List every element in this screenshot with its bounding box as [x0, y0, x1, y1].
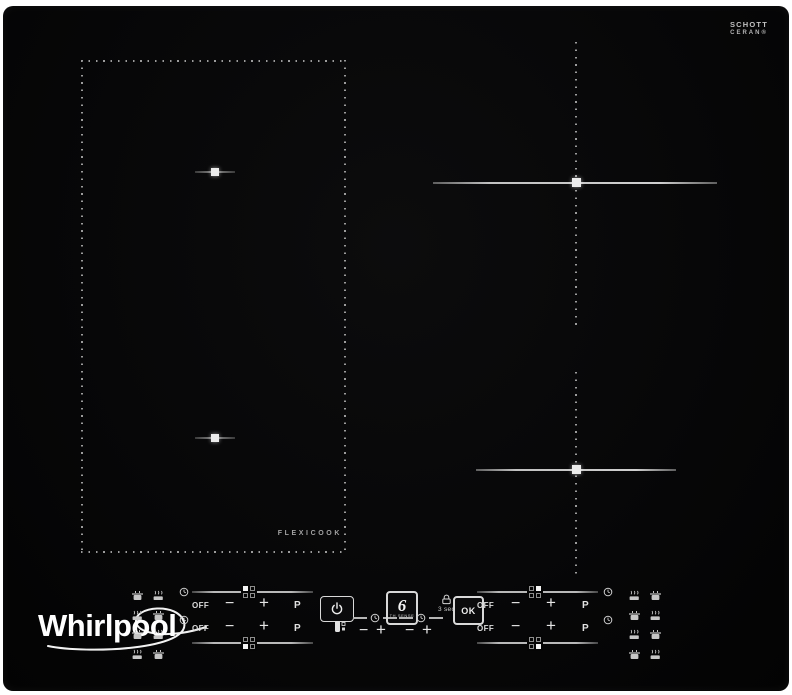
pot-icon	[131, 629, 144, 640]
zone-center-marker-front-right	[572, 465, 581, 474]
timer-minus-button-left[interactable]: −	[359, 626, 368, 636]
pot-icon	[152, 649, 165, 660]
off-button-front-right[interactable]: OFF	[477, 624, 494, 633]
pan-icon	[131, 649, 144, 660]
ok-button-label: OK	[461, 606, 476, 616]
cookware-legend-left	[127, 586, 169, 664]
off-button-rear-right[interactable]: OFF	[477, 601, 494, 610]
flexicook-label: FLEXICOOK	[258, 530, 342, 537]
schott-text: SCHOTT	[718, 20, 780, 29]
minus-button-front-left[interactable]: −	[225, 622, 234, 632]
off-button-front-left[interactable]: OFF	[192, 624, 209, 633]
pot-icon	[628, 649, 641, 660]
pot-marker-icon	[211, 434, 219, 442]
timer-clock-icon	[603, 615, 613, 625]
zone-indicator-rear-right	[527, 584, 543, 600]
pan-icon	[628, 629, 641, 640]
minus-button-front-right[interactable]: −	[511, 622, 520, 632]
zone-indicator-rear-left	[241, 584, 257, 600]
pan-icon	[131, 610, 144, 621]
six-sense-number: 6	[398, 598, 407, 613]
timer-plus-button-right[interactable]: +	[422, 624, 432, 636]
boost-button-rear-left[interactable]: P	[294, 600, 301, 611]
boost-button-front-left[interactable]: P	[294, 623, 301, 634]
timer-minus-button-right[interactable]: −	[405, 626, 414, 636]
pot-icon	[152, 610, 165, 621]
ceran-text: CERAN®	[718, 30, 780, 36]
pan-icon	[649, 610, 662, 621]
pan-icon	[152, 629, 165, 640]
boost-button-front-right[interactable]: P	[582, 623, 589, 634]
flexicook-zone-border-right	[344, 60, 346, 553]
flexicook-zone-border-top	[81, 60, 346, 62]
zone-indicator-front-left	[241, 635, 257, 651]
timer-line	[429, 617, 443, 619]
off-button-rear-left[interactable]: OFF	[192, 601, 209, 610]
plus-button-rear-left[interactable]: +	[259, 597, 269, 609]
flexicook-zone-border-bottom	[81, 551, 346, 553]
pot-icon	[131, 590, 144, 601]
key-lock-icon[interactable]	[334, 620, 348, 633]
timer-line	[353, 617, 367, 619]
minus-button-rear-right[interactable]: −	[511, 599, 520, 609]
pan-icon	[628, 590, 641, 601]
boost-button-rear-right[interactable]: P	[582, 600, 589, 611]
pan-icon	[152, 590, 165, 601]
product-photo: SCHOTT CERAN® FLEXICOOK Whirlpool	[0, 0, 792, 695]
timer-clock-icon	[603, 587, 613, 597]
timer-clock-icon	[179, 615, 189, 625]
schott-ceran-logo: SCHOTT CERAN®	[718, 20, 780, 36]
induction-hob-glass	[3, 6, 789, 691]
power-button[interactable]	[320, 596, 354, 622]
plus-button-front-right[interactable]: +	[546, 620, 556, 632]
pot-marker-icon	[211, 168, 219, 176]
pot-icon	[649, 590, 662, 601]
power-icon	[330, 602, 344, 616]
cookware-legend-right	[624, 586, 666, 664]
pot-icon	[628, 610, 641, 621]
flexicook-zone-border-left	[81, 60, 83, 553]
pan-icon	[649, 649, 662, 660]
timer-plus-button-left[interactable]: +	[376, 624, 386, 636]
plus-button-rear-right[interactable]: +	[546, 597, 556, 609]
zone-center-marker-rear-right	[572, 178, 581, 187]
plus-button-front-left[interactable]: +	[259, 620, 269, 632]
padlock-icon	[441, 594, 452, 605]
timer-line	[399, 617, 413, 619]
whirlpool-logo: Whirlpool	[34, 592, 212, 658]
timer-clock-icon	[179, 587, 189, 597]
zone-indicator-front-right	[527, 635, 543, 651]
minus-button-rear-left[interactable]: −	[225, 599, 234, 609]
pot-icon	[649, 629, 662, 640]
